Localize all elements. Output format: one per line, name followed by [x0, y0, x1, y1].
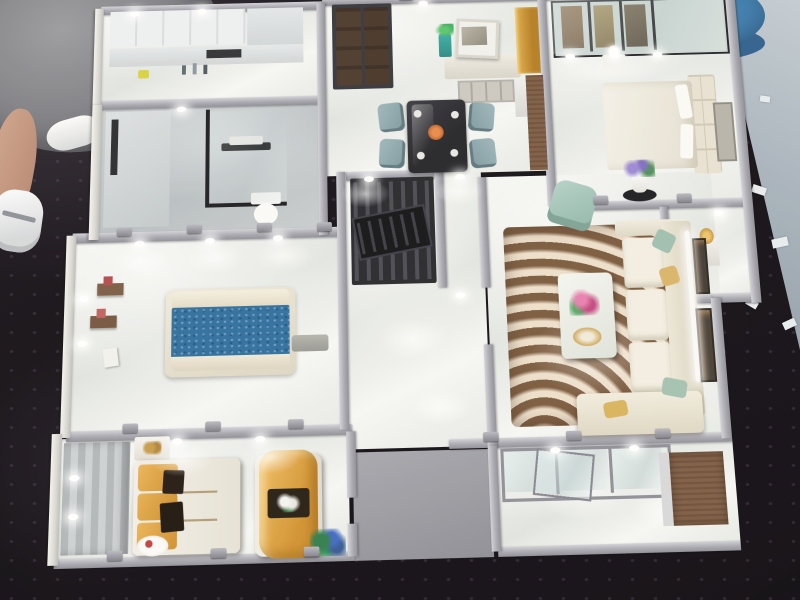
- wall-clip: [205, 421, 221, 431]
- bottle: [203, 65, 207, 74]
- wardrobe-glass: [551, 0, 726, 54]
- vase-foliage: [434, 24, 454, 37]
- cubby-shelf: [458, 79, 515, 103]
- dining-chair: [468, 102, 495, 132]
- wall-clip: [187, 224, 202, 233]
- wall-clip: [257, 223, 272, 232]
- blue-duvet: [171, 305, 290, 359]
- open-glass-panel: [535, 450, 593, 499]
- sofa-seat: [625, 289, 669, 341]
- wall-clip: [117, 227, 132, 236]
- art-print: [461, 26, 487, 45]
- dark-throw: [160, 501, 185, 533]
- paper-scrap: [760, 95, 771, 102]
- dining-chair: [377, 102, 406, 133]
- wall-clip: [211, 548, 227, 558]
- wall-clip: [483, 432, 499, 442]
- white-flowers: [276, 493, 301, 513]
- gold-seat-cushions: [179, 465, 218, 548]
- bottle: [193, 63, 197, 74]
- wall-clip: [655, 428, 671, 438]
- entry-door-leaf: [364, 7, 390, 85]
- pink-flower-arrangement: [568, 289, 600, 316]
- yellow-dish: [138, 70, 149, 79]
- wall-clip: [566, 431, 582, 441]
- wall-clip: [676, 193, 692, 202]
- leaning-frame: [103, 347, 119, 368]
- wall-clip: [317, 222, 332, 231]
- wall-clip: [107, 551, 123, 561]
- range-hood: [206, 49, 241, 58]
- coffee-table: [557, 272, 617, 359]
- entry-door-leaf: [336, 8, 362, 86]
- wall: [346, 431, 356, 497]
- photo-scene: [0, 0, 800, 600]
- roof-block: [353, 449, 494, 561]
- dining-chair: [469, 138, 498, 169]
- sofa-chaise: [576, 391, 705, 436]
- balcony-cabinet: [669, 451, 729, 526]
- wall-clip: [304, 546, 320, 556]
- mirror-frame: [110, 119, 118, 175]
- plank-accent-wall: [60, 442, 130, 556]
- gold-cabinet: [514, 7, 540, 74]
- dining-chair: [379, 139, 406, 169]
- shelf-decor: [103, 276, 112, 285]
- wall-clip: [122, 423, 138, 433]
- bottle: [182, 65, 186, 74]
- bed-bench: [292, 334, 329, 351]
- shower-glass: [209, 110, 287, 204]
- shelf-decor: [96, 309, 105, 318]
- apartment-model: [43, 0, 784, 572]
- wall-clip: [593, 195, 608, 204]
- wall-clip: [288, 419, 304, 429]
- pillow: [680, 124, 693, 159]
- purple-flowers: [623, 159, 656, 177]
- glass-pane: [611, 447, 664, 489]
- wall: [348, 524, 358, 557]
